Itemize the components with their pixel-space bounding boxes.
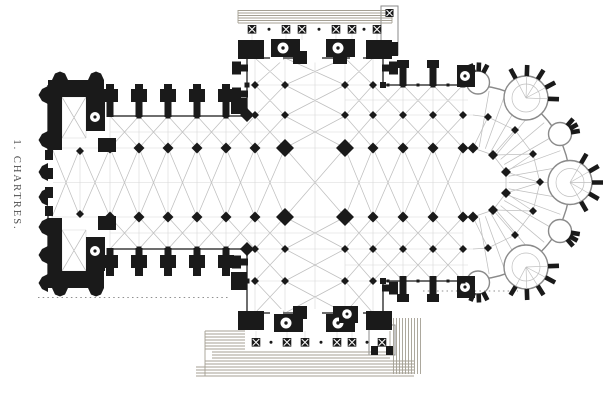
west-portal-gap-2 bbox=[45, 179, 53, 187]
plate-page: 1. CHARTRES. bbox=[0, 0, 609, 400]
nw-tower-turret-bumps bbox=[52, 72, 104, 81]
wall-responds bbox=[137, 82, 466, 284]
south-transept-stair-pier bbox=[339, 306, 358, 323]
north-porch-column-bases bbox=[248, 25, 382, 34]
reference-dotted-lines bbox=[38, 291, 518, 298]
sw-tower-turret-bumps bbox=[52, 288, 104, 297]
plan-caption: 1. CHARTRES. bbox=[11, 139, 22, 230]
south-porch-column-bases bbox=[252, 338, 387, 347]
north-annex-mass bbox=[382, 42, 398, 56]
apse-walls bbox=[369, 6, 592, 355]
nave-north-buttresses bbox=[102, 84, 234, 117]
nave-south-buttresses bbox=[102, 248, 234, 276]
south-annex-base-2 bbox=[386, 346, 393, 355]
northwest-tower bbox=[48, 72, 116, 153]
north-porch-steps-hatch bbox=[238, 10, 392, 23]
south-annex-base-1 bbox=[371, 346, 378, 355]
base-x-marks bbox=[253, 339, 386, 346]
cathedral-plan-svg: 1. CHARTRES. bbox=[0, 0, 609, 400]
south-transept-facade bbox=[238, 306, 392, 332]
secondary-piers bbox=[76, 81, 544, 285]
vault-web bbox=[52, 58, 566, 313]
north-transept-facade bbox=[238, 39, 392, 64]
west-front-buttresses bbox=[39, 86, 49, 292]
bay-grid-lines bbox=[52, 33, 509, 338]
grid-path bbox=[52, 33, 509, 338]
masonry bbox=[39, 9, 604, 355]
choir-north-buttresses bbox=[397, 60, 439, 86]
